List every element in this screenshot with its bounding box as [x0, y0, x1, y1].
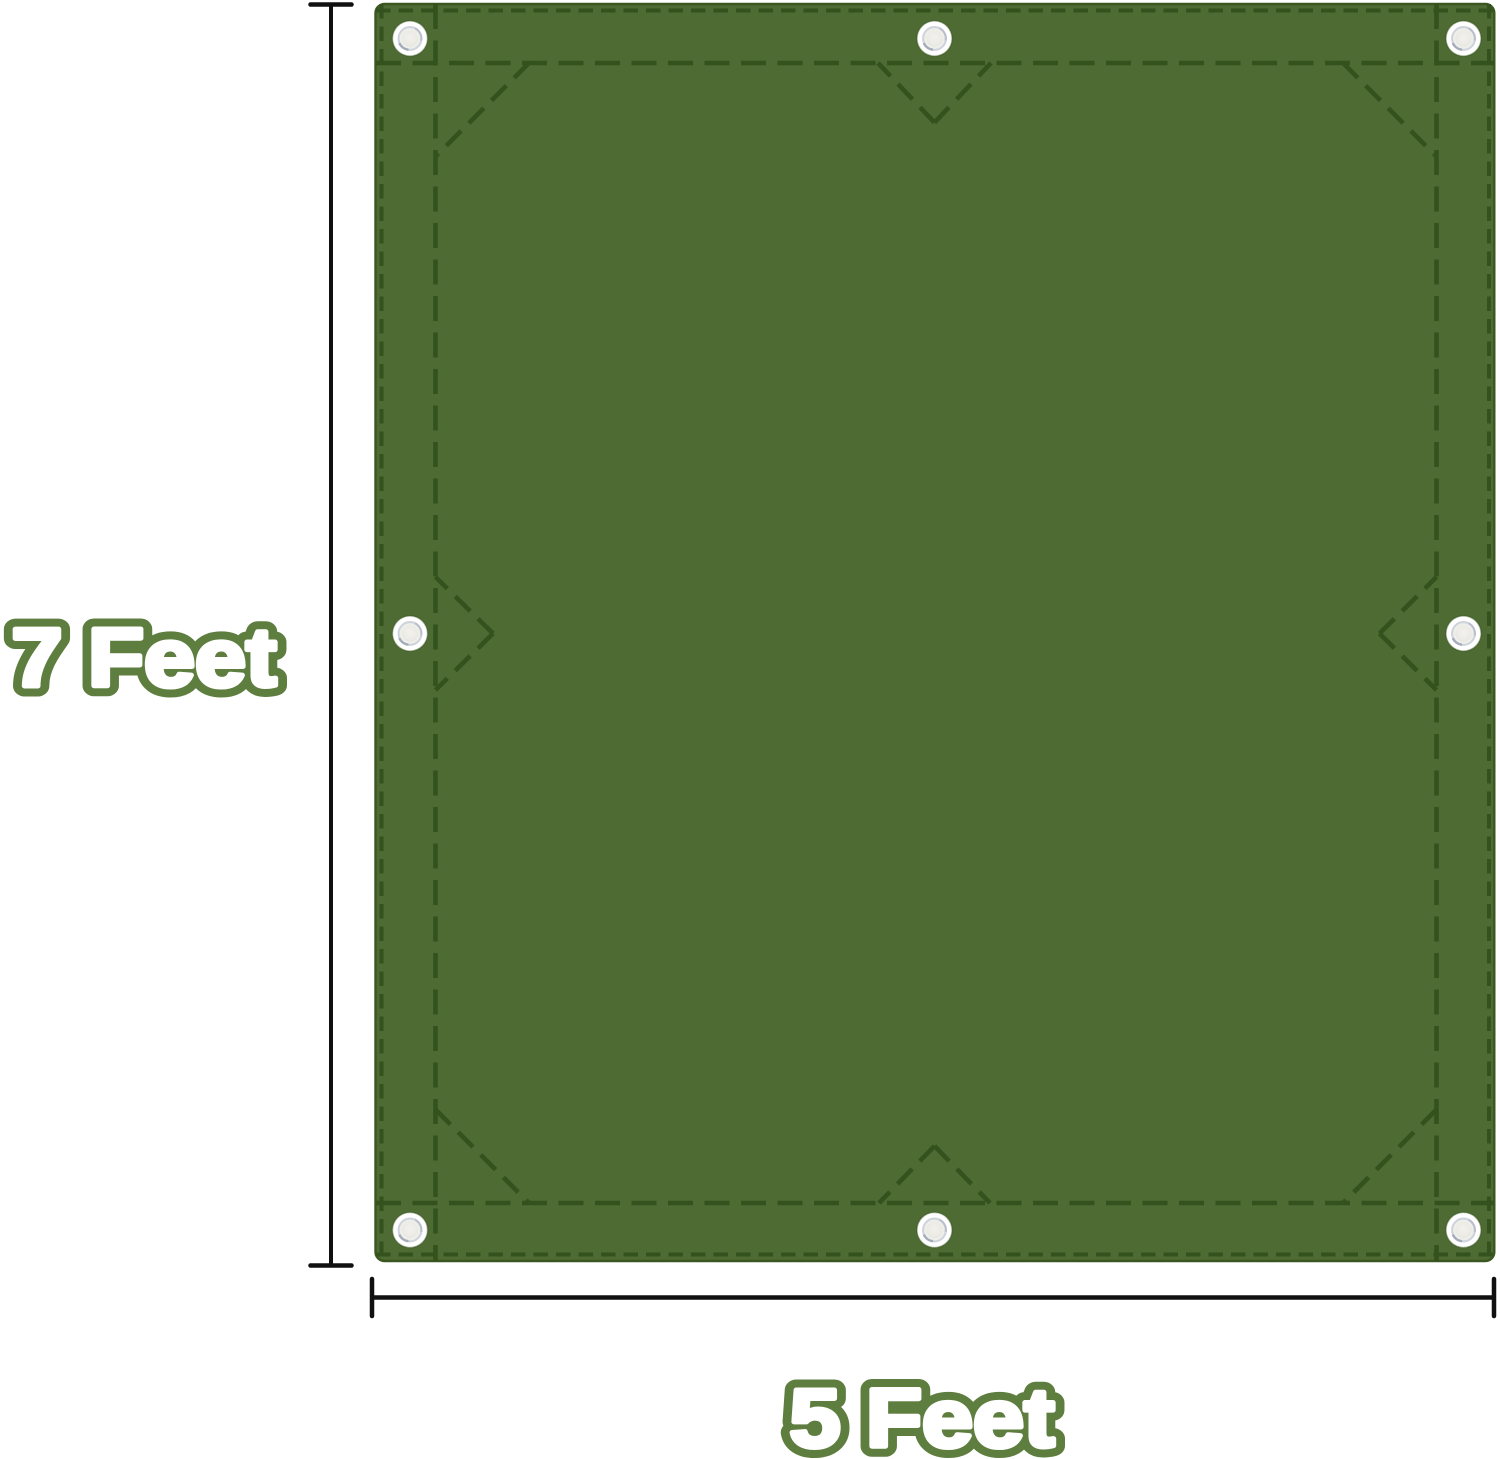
svg-text:7 Feet: 7 Feet — [12, 611, 277, 704]
svg-text:5 Feet: 5 Feet — [790, 1372, 1055, 1459]
